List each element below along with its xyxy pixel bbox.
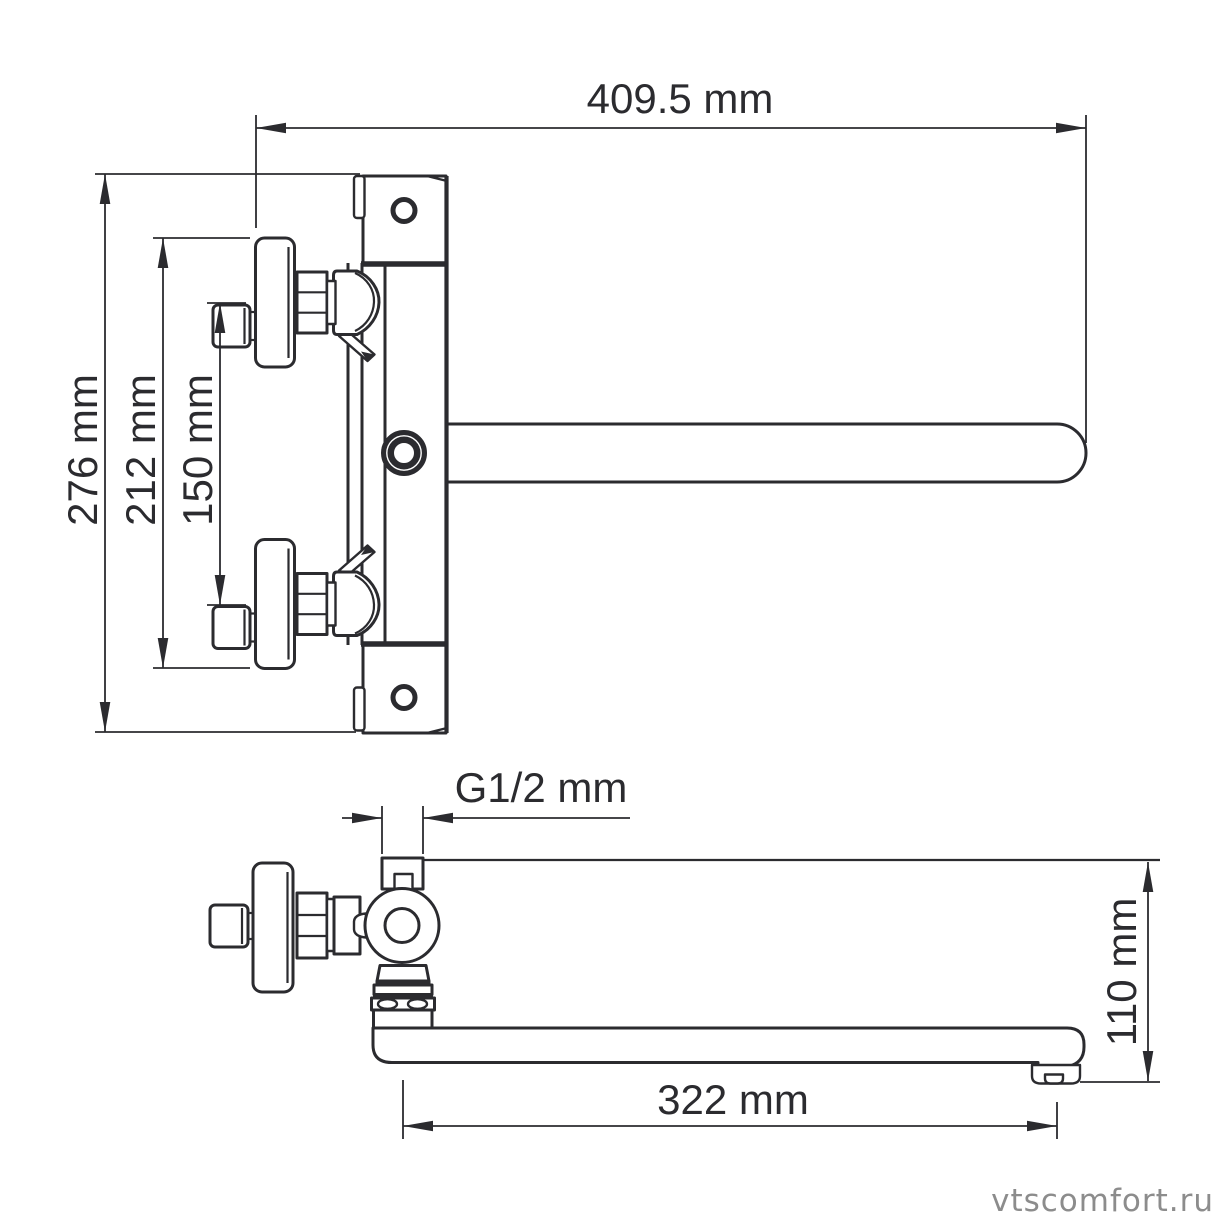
dim-spout-length-label: 322 mm	[657, 1076, 809, 1123]
dim-body-height-label: 212 mm	[117, 374, 164, 526]
top-view-spout	[446, 424, 1086, 482]
cartridge-cap	[387, 436, 421, 470]
side-view: G1/2 mm 110 mm 322 mm	[210, 764, 1160, 1139]
dim-spout-height-label: 110 mm	[1098, 898, 1145, 1047]
dim-thread-label: G1/2 mm	[455, 764, 628, 811]
top-view-body	[348, 176, 1086, 733]
dim-overall-width-label: 409.5 mm	[587, 75, 774, 122]
bottom-mounting-bracket	[354, 644, 447, 733]
watermark: vtscomfort.ru	[991, 1183, 1214, 1219]
dim-inlet-spacing-label: 150 mm	[174, 374, 221, 526]
faucet-technical-drawing: 409.5 mm 276 mm 212 mm 150 mm	[0, 0, 1222, 1222]
screw-hole	[393, 687, 415, 709]
top-view: 409.5 mm 276 mm 212 mm 150 mm	[59, 75, 1086, 733]
top-mounting-bracket	[354, 176, 447, 264]
dim-spout-length: 322 mm	[403, 1076, 1057, 1139]
dim-thread: G1/2 mm	[342, 764, 630, 854]
side-view-handle	[210, 863, 360, 992]
screw-hole	[393, 200, 415, 222]
side-view-valve-body	[354, 858, 439, 1028]
bottom-valve	[213, 540, 379, 669]
dim-overall-height-label: 276 mm	[59, 374, 106, 526]
drawing-page: 409.5 mm 276 mm 212 mm 150 mm	[0, 0, 1222, 1222]
dim-spout-height: 110 mm	[1080, 862, 1160, 1082]
aerator	[1045, 1075, 1063, 1084]
